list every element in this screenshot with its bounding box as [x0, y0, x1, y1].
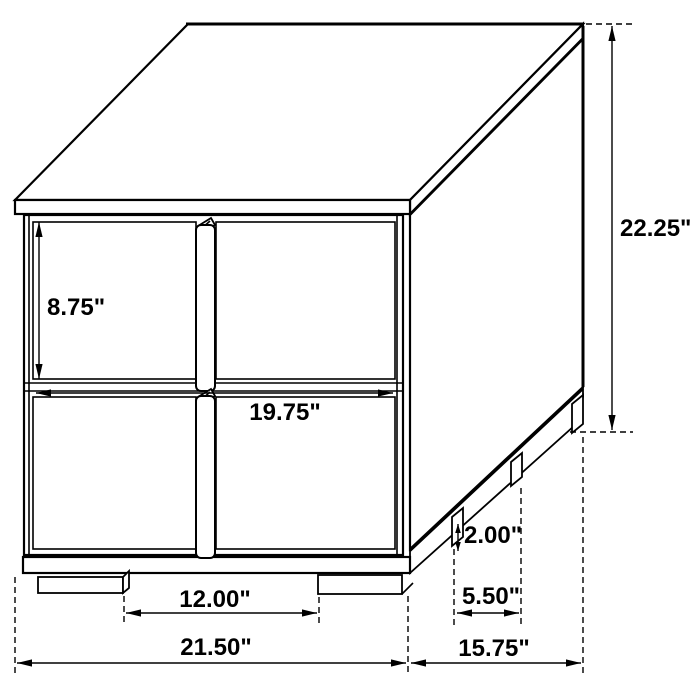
- drawer-panel-top-right: [216, 222, 395, 379]
- dim-label-drawer-width: 19.75": [249, 399, 320, 426]
- dim-label-overall-height: 22.25": [620, 215, 691, 242]
- dim-label-overall-depth: 15.75": [458, 635, 529, 662]
- front-leg-right: [318, 575, 402, 594]
- front-leg-left: [38, 577, 123, 593]
- dim-label-overall-width: 21.50": [180, 634, 251, 661]
- dim-label-front-leg-spacing: 12.00": [179, 586, 250, 613]
- handle-upper: [196, 225, 215, 391]
- front-base-strip: [23, 557, 410, 573]
- furniture-dimension-diagram: 8.75" 19.75" 22.25" 12.00" 21.50" 15.75"…: [0, 0, 700, 700]
- top-panel-front-edge-face: [15, 200, 410, 214]
- drawer-handles: [196, 218, 215, 558]
- nightstand-isometric-drawing: 8.75" 19.75" 22.25" 12.00" 21.50" 15.75"…: [0, 0, 700, 700]
- dim-label-leg-height: 2.00": [464, 522, 522, 549]
- dim-label-side-leg-spacing: 5.50": [462, 583, 520, 610]
- dim-label-drawer-height: 8.75": [47, 294, 105, 321]
- front-leg-left-side: [123, 571, 129, 593]
- drawer-panel-bottom-left: [33, 397, 196, 549]
- handle-lower: [196, 396, 215, 558]
- front-leg-right-bevel: [402, 583, 413, 594]
